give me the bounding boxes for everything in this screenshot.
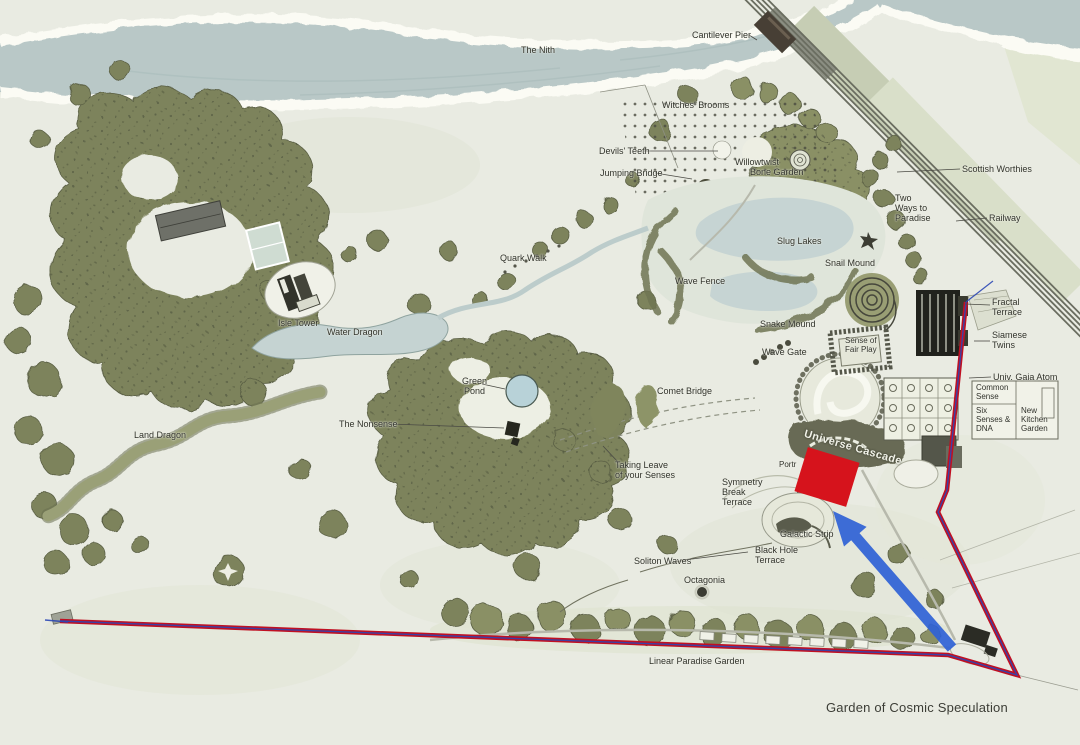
garden-map: The NithCantilever PierWitches' BroomsDe… xyxy=(0,0,1080,745)
kitchen-garden xyxy=(884,378,958,440)
gaia-atom-panel xyxy=(972,381,1058,439)
black-hole-mound xyxy=(762,493,834,548)
octagonia-dot xyxy=(696,586,709,599)
map-caption: Garden of Cosmic Speculation xyxy=(826,700,1008,715)
map-canvas xyxy=(0,0,1080,745)
